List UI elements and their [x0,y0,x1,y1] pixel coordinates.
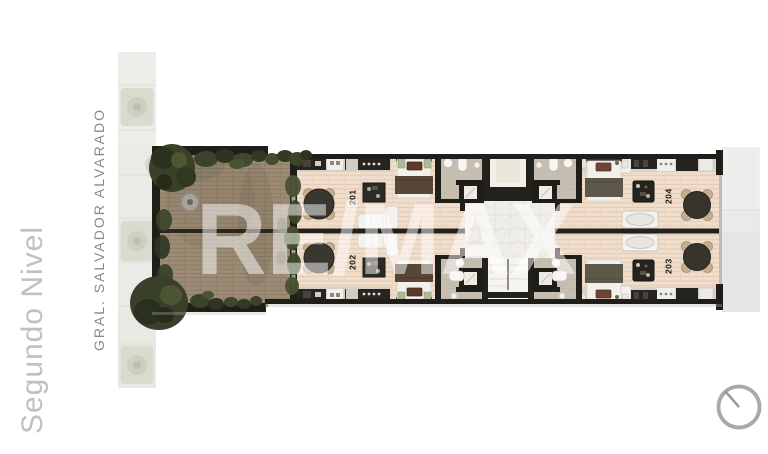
svg-text:203: 203 [664,258,674,274]
svg-text:GRAL. SALVADOR ALVARADO: GRAL. SALVADOR ALVARADO [91,109,107,351]
svg-text:204: 204 [664,188,674,204]
svg-text:RE/MAX: RE/MAX [196,184,576,296]
svg-text:Segundo Nivel: Segundo Nivel [16,226,49,434]
